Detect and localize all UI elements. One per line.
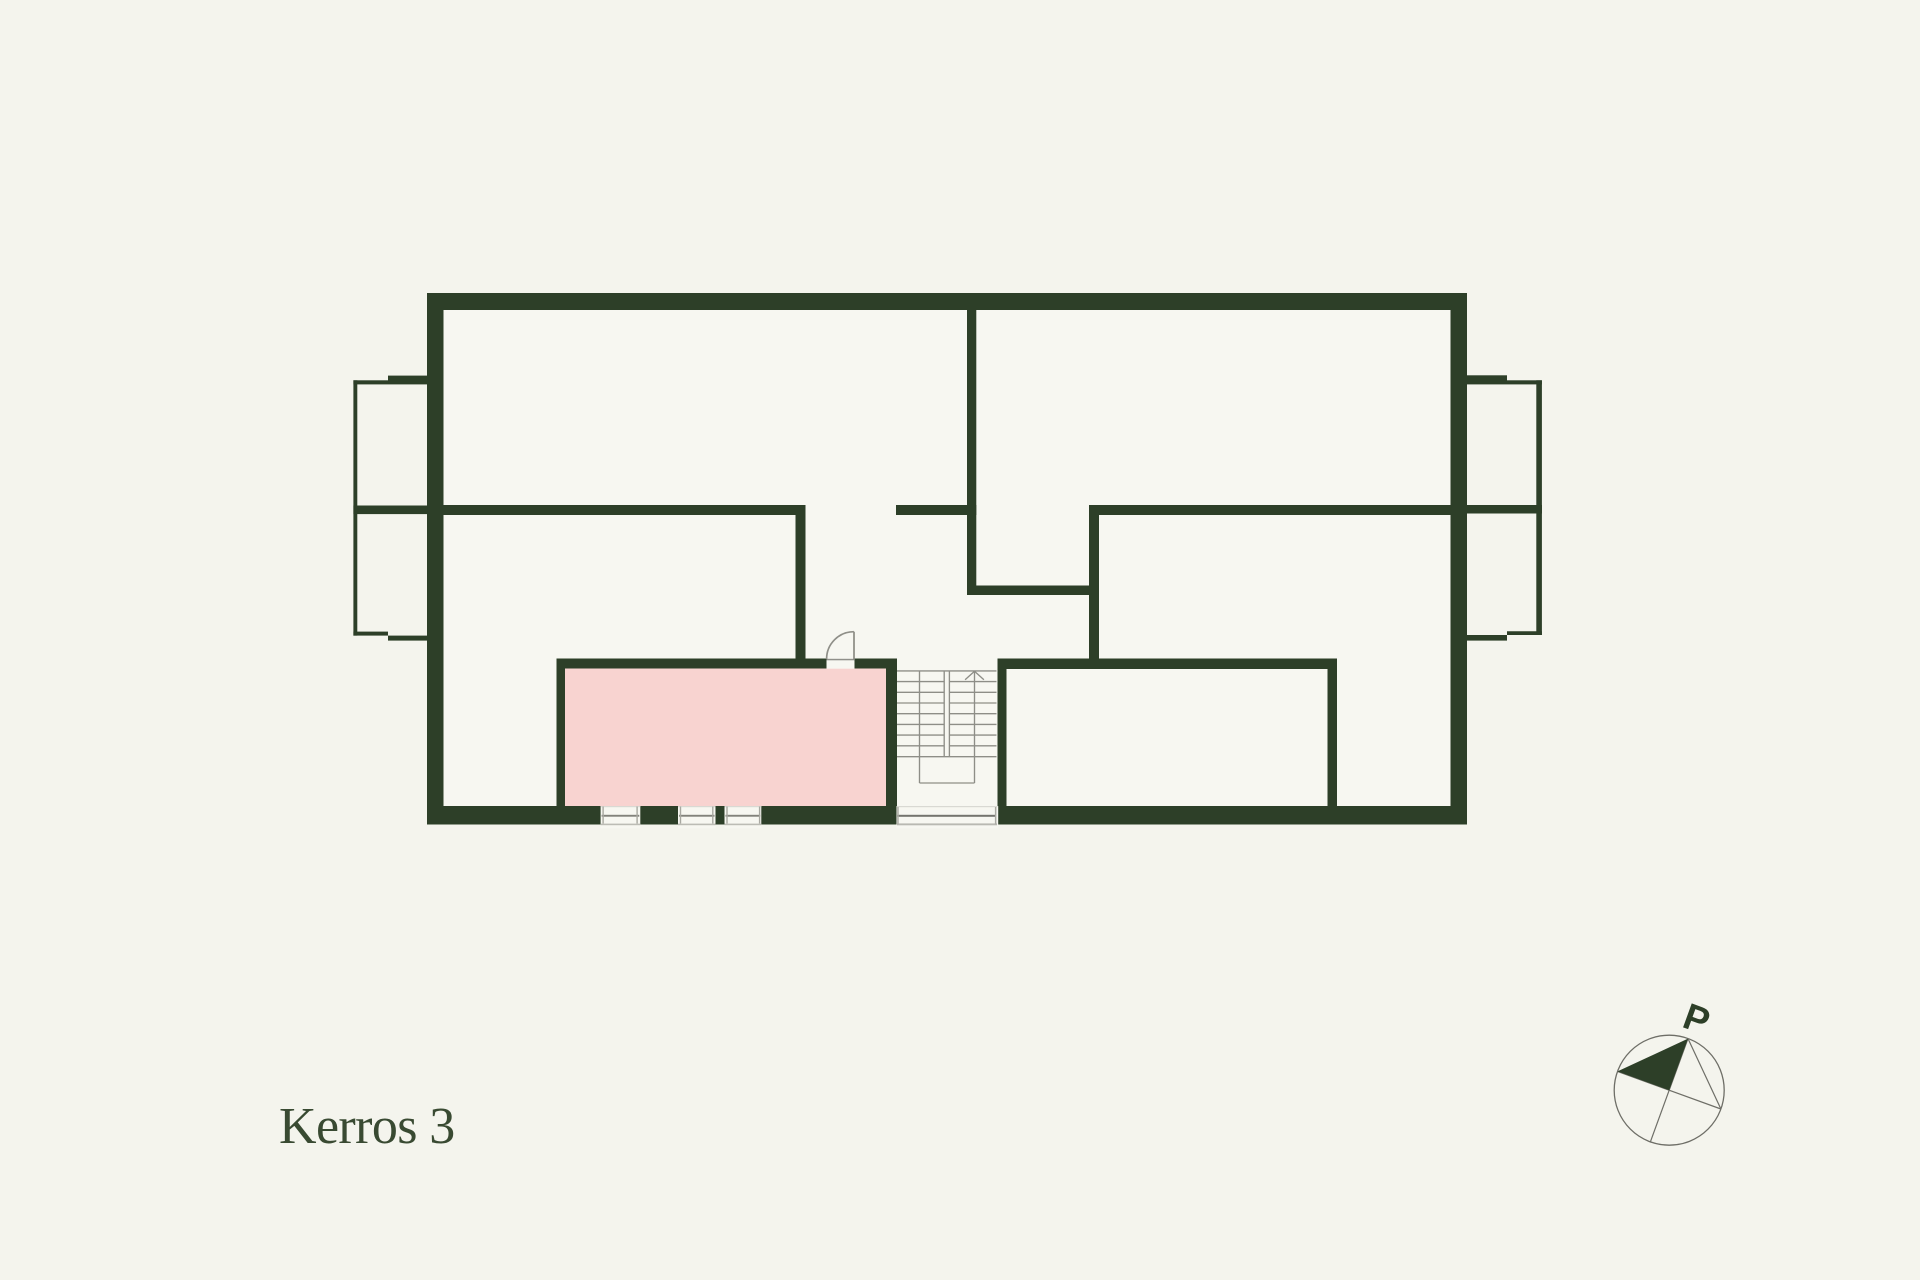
svg-text:Kerros 3: Kerros 3	[279, 1098, 455, 1155]
